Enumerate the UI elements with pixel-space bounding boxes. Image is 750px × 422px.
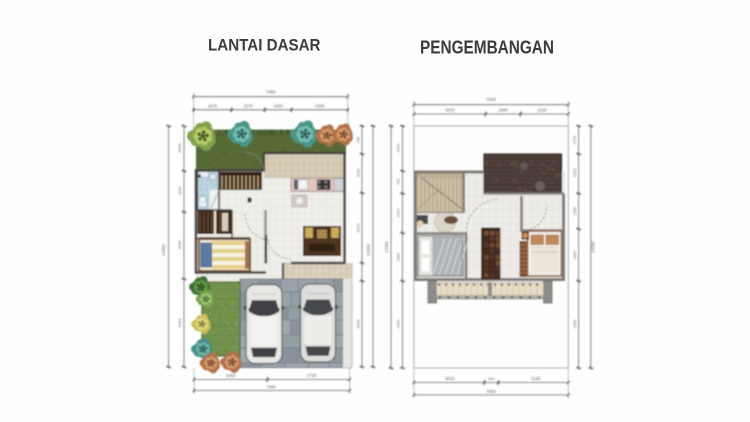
svg-text:LANTAI DASAR: LANTAI DASAR <box>208 36 321 55</box>
svg-text:4300: 4300 <box>396 319 401 328</box>
svg-text:1570: 1570 <box>243 103 253 108</box>
svg-text:10560: 10560 <box>161 244 166 256</box>
svg-text:1200: 1200 <box>572 206 577 215</box>
svg-text:7000: 7000 <box>486 97 496 102</box>
svg-text:940: 940 <box>488 376 495 381</box>
svg-text:1315: 1315 <box>572 169 577 178</box>
svg-text:7060: 7060 <box>267 384 277 389</box>
svg-text:10060: 10060 <box>384 241 389 253</box>
svg-text:4300: 4300 <box>355 319 360 329</box>
svg-text:PENGEMBANGAN: PENGEMBANGAN <box>420 38 554 58</box>
svg-text:5010: 5010 <box>445 108 455 113</box>
svg-text:1060: 1060 <box>498 108 508 113</box>
svg-text:7060: 7060 <box>266 90 276 95</box>
svg-text:2450: 2450 <box>226 373 236 378</box>
svg-text:2560: 2560 <box>177 143 182 153</box>
svg-text:10560: 10560 <box>366 244 371 256</box>
svg-text:1600: 1600 <box>396 252 401 261</box>
svg-text:5010: 5010 <box>445 376 455 381</box>
svg-text:10060: 10060 <box>590 241 595 253</box>
svg-text:4350: 4350 <box>177 318 182 328</box>
svg-text:1675: 1675 <box>208 103 218 108</box>
svg-text:3300: 3300 <box>315 103 325 108</box>
svg-text:3030: 3030 <box>177 240 182 250</box>
svg-text:1110: 1110 <box>355 168 360 177</box>
svg-text:3470: 3470 <box>355 223 360 233</box>
svg-text:1650: 1650 <box>274 103 284 108</box>
svg-text:7000: 7000 <box>486 389 496 394</box>
svg-text:2770: 2770 <box>572 135 577 144</box>
svg-text:1500: 1500 <box>396 143 401 152</box>
svg-text:745: 745 <box>396 179 401 186</box>
svg-text:2130: 2130 <box>537 108 547 113</box>
svg-text:1130: 1130 <box>177 186 182 195</box>
svg-text:3130: 3130 <box>531 376 541 381</box>
svg-text:1315: 1315 <box>396 209 401 218</box>
svg-text:795: 795 <box>355 136 360 143</box>
svg-text:4300: 4300 <box>572 319 577 328</box>
svg-text:1600: 1600 <box>572 250 577 259</box>
svg-text:2730: 2730 <box>307 373 317 378</box>
